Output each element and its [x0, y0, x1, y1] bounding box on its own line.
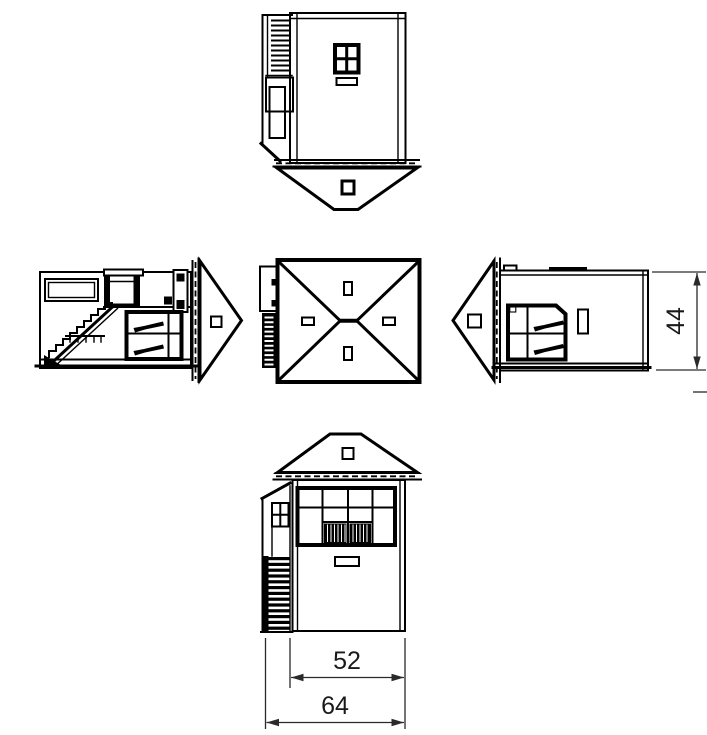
left-roof-vent [211, 317, 222, 328]
orthographic-views-drawing: 44 [0, 0, 707, 735]
view-front-elevation [261, 434, 421, 632]
rear-window [335, 45, 359, 85]
view-right-elevation [453, 259, 650, 383]
front-window-band [298, 488, 396, 545]
dimension-overall-width-label: 64 [321, 692, 349, 720]
plan-vent-west [302, 318, 314, 326]
rear-roof-vent [342, 181, 354, 194]
dimension-overall-width: 64 [267, 692, 405, 726]
dimension-arrow-left [267, 719, 280, 726]
front-porch-roof [262, 483, 290, 499]
view-roof-plan [260, 260, 420, 382]
rear-porch-roof-edge [261, 144, 280, 162]
technical-drawing-page: 44 [0, 0, 707, 735]
dimension-cabin-width-label: 52 [333, 647, 361, 675]
plan-vent-south [344, 347, 352, 360]
rear-roof [274, 160, 421, 210]
plan-vent-north [344, 282, 352, 295]
left-lever-window [127, 312, 182, 359]
plan-vent-east [383, 318, 395, 326]
plan-stair-strip [260, 267, 277, 369]
right-roof-hatch [504, 266, 517, 271]
right-roof [453, 259, 500, 383]
front-roof-vent [343, 448, 354, 459]
dimension-arrow-right [392, 674, 405, 681]
dimension-height-label: 44 [662, 307, 690, 335]
rear-wall [290, 13, 406, 163]
front-staircase [261, 483, 293, 632]
dimension-arrow-down [693, 357, 700, 370]
front-stair-treads [269, 557, 291, 630]
right-ridge-cap [549, 267, 587, 272]
left-roof [193, 259, 242, 383]
right-lever-window [508, 306, 566, 360]
dimension-arrow-left [291, 674, 304, 681]
dimension-arrow-up [693, 273, 700, 286]
view-rear-elevation [261, 13, 421, 210]
plan-hipped-roof [278, 260, 420, 382]
front-stair-rail [263, 556, 269, 632]
right-roof-vent [468, 315, 481, 328]
rear-stair-ladder [261, 15, 293, 161]
view-left-elevation [36, 259, 242, 383]
dimension-height: 44 [652, 272, 707, 392]
front-roof [274, 434, 422, 480]
dimension-arrow-right [392, 719, 405, 726]
